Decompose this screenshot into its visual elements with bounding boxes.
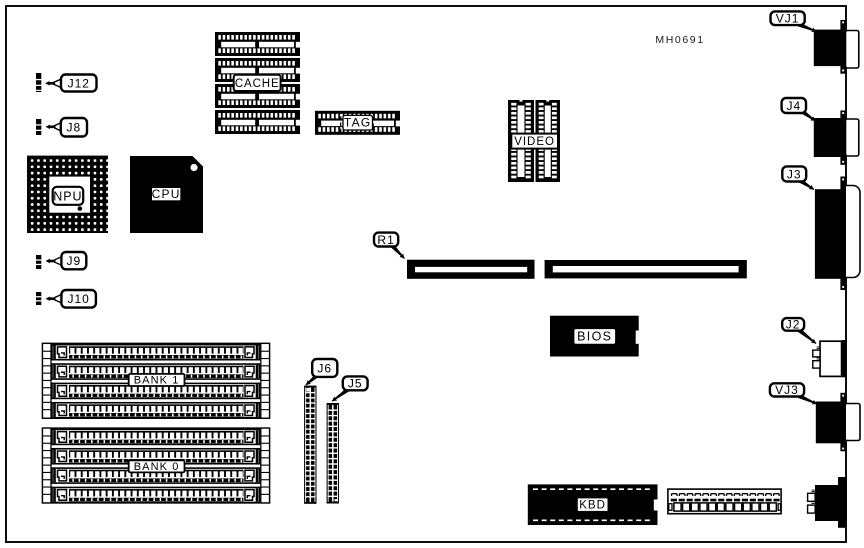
svg-text:BIOS: BIOS <box>577 330 612 344</box>
svg-text:J8: J8 <box>67 121 82 135</box>
svg-text:BANK 0: BANK 0 <box>134 461 180 473</box>
svg-text:J5: J5 <box>348 377 363 391</box>
svg-text:MH0691: MH0691 <box>655 34 704 46</box>
svg-text:J12: J12 <box>68 76 90 90</box>
svg-text:J4: J4 <box>786 99 801 113</box>
svg-text:NPU: NPU <box>53 189 82 203</box>
svg-text:TAG: TAG <box>344 116 372 130</box>
svg-text:VJ1: VJ1 <box>776 12 800 26</box>
svg-text:VIDEO: VIDEO <box>514 136 555 148</box>
svg-text:J2: J2 <box>786 318 801 332</box>
svg-text:BANK 1: BANK 1 <box>134 375 180 387</box>
svg-text:KBD: KBD <box>579 499 606 511</box>
svg-text:CACHE: CACHE <box>235 78 280 90</box>
svg-text:J10: J10 <box>67 292 89 306</box>
svg-text:J3: J3 <box>787 167 802 181</box>
svg-text:J9: J9 <box>67 254 82 268</box>
svg-text:VJ3: VJ3 <box>775 383 799 397</box>
svg-text:J6: J6 <box>317 361 332 375</box>
svg-text:CPU: CPU <box>152 187 181 201</box>
svg-text:R1: R1 <box>377 233 394 247</box>
